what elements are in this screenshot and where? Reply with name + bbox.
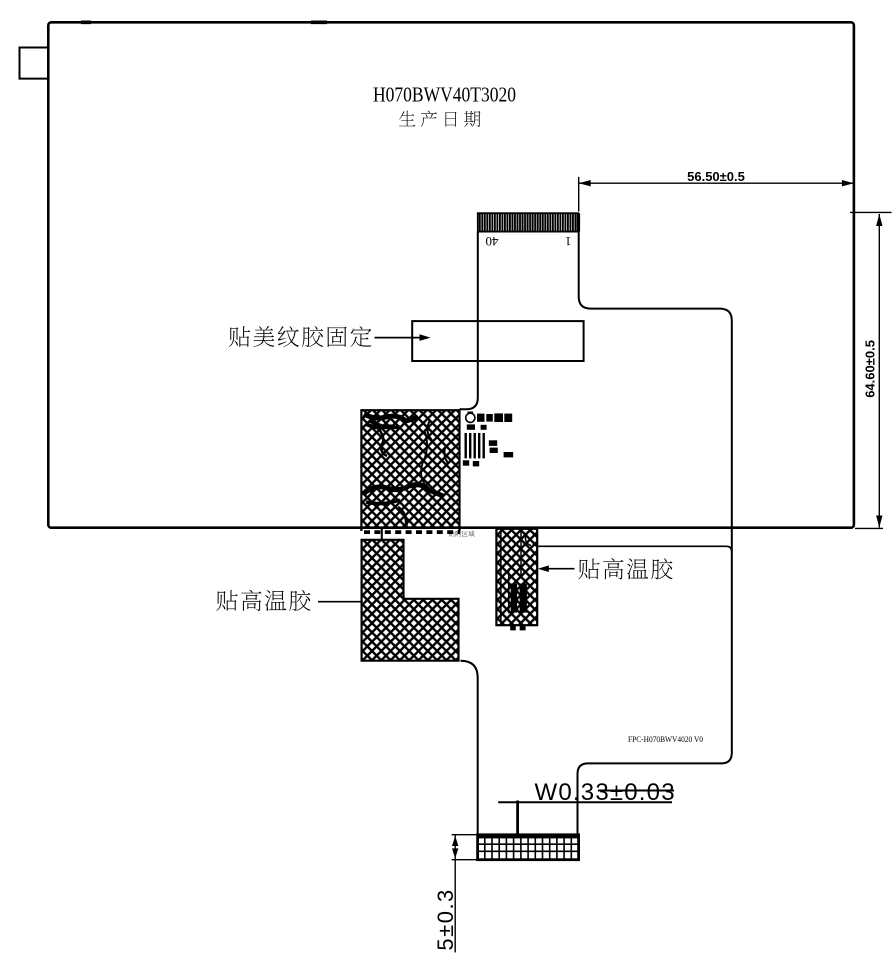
svg-text:64.60±0.5: 64.60±0.5 [863, 340, 878, 398]
svg-text:FPC-H070BWV4020 V0: FPC-H070BWV4020 V0 [628, 734, 703, 744]
svg-text:5±0.3: 5±0.3 [433, 888, 458, 950]
svg-text:56.50±0.5: 56.50±0.5 [687, 169, 745, 184]
svg-text:H070BWV40T3020: H070BWV40T3020 [373, 83, 516, 107]
svg-text:1: 1 [565, 234, 572, 249]
svg-text:40: 40 [486, 234, 499, 249]
